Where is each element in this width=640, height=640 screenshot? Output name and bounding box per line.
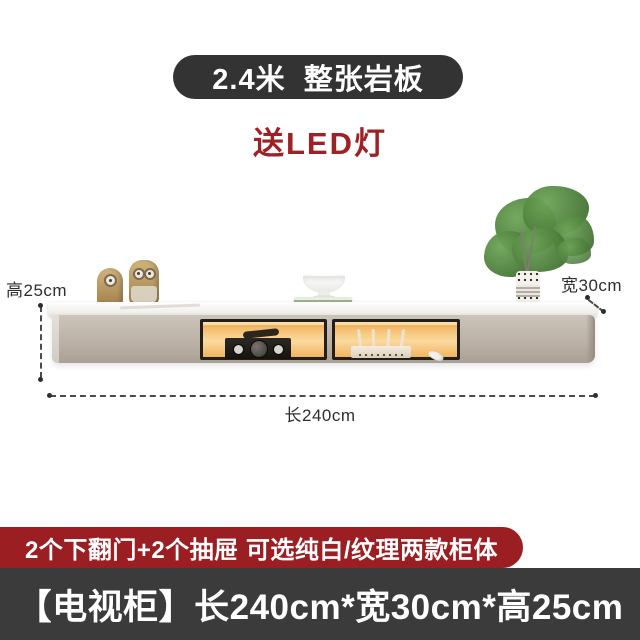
feature-banner-label: 2个下翻门+2个抽屉 可选纯白/纹理两款柜体 bbox=[25, 530, 498, 565]
dimension-dot bbox=[47, 393, 52, 398]
amp-knob-icon bbox=[250, 340, 268, 358]
amp-knob-icon bbox=[273, 344, 284, 355]
dimension-height-line bbox=[40, 306, 42, 378]
dimension-dot bbox=[601, 309, 606, 314]
vase-ribbed-band-icon bbox=[516, 285, 540, 297]
promo-text: 送LED灯 bbox=[0, 118, 640, 163]
dimension-dot bbox=[593, 393, 598, 398]
router-antenna-icon bbox=[372, 329, 376, 347]
minion-overalls-icon bbox=[131, 286, 157, 303]
dimension-length-label: 长240cm bbox=[0, 401, 640, 426]
dimension-length-line bbox=[50, 395, 595, 397]
dimension-dot bbox=[38, 303, 43, 308]
spec-banner: 【电视柜】长240cm*宽30cm*高25cm bbox=[0, 568, 640, 640]
cabinet-right-edge bbox=[586, 315, 595, 363]
router-icon bbox=[351, 346, 411, 358]
dimension-dot bbox=[585, 295, 590, 300]
router-ports-icon bbox=[359, 354, 403, 356]
minion-goggle-icon bbox=[144, 268, 156, 280]
plant-foliage-icon bbox=[557, 238, 591, 264]
cabinet-left-edge bbox=[52, 315, 59, 363]
spec-banner-label: 【电视柜】长240cm*宽30cm*高25cm bbox=[17, 579, 624, 630]
title-banner-label: 2.4米 整张岩板 bbox=[212, 56, 423, 98]
amp-knob-icon bbox=[233, 344, 244, 355]
product-image: 2.4米 整张岩板 送LED灯 bbox=[0, 0, 640, 640]
dimension-width-label: 宽30cm bbox=[561, 271, 622, 296]
amplifier-icon bbox=[225, 338, 291, 359]
dimension-height-label: 高25cm bbox=[6, 276, 67, 301]
minion-figurine-right-icon bbox=[129, 260, 159, 305]
title-banner: 2.4米 整张岩板 bbox=[173, 55, 463, 99]
feature-banner: 2个下翻门+2个抽屉 可选纯白/纹理两款柜体 bbox=[0, 527, 523, 568]
dimension-dot bbox=[38, 377, 43, 382]
minion-goggle-icon bbox=[104, 274, 117, 287]
